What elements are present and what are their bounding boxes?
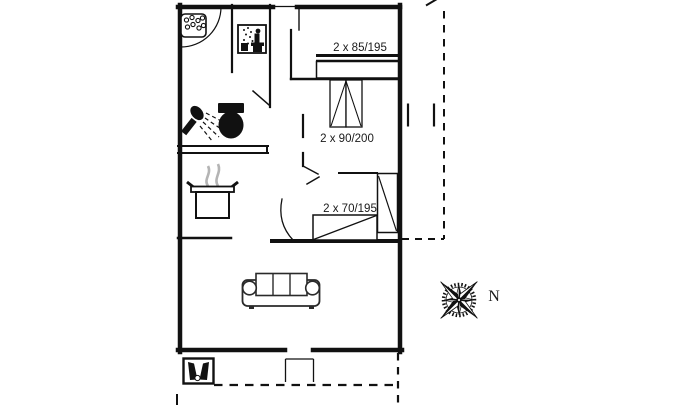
steam (206, 164, 219, 186)
double-bed (316, 56, 399, 79)
compass-rose-icon (422, 263, 496, 337)
twin-beds (330, 80, 362, 127)
sauna-icon (238, 25, 266, 53)
bunk-bed (313, 215, 377, 240)
floorplan-canvas: 2 x 85/195 2 x 90/200 2 x 70/195 (0, 0, 680, 408)
wood-stove-icon (184, 359, 214, 384)
double-bed-label: 2 x 85/195 (333, 42, 387, 54)
hallway-door-leaf-2 (307, 177, 319, 184)
hallway-door-leaf-1 (303, 166, 318, 174)
terrace-top-diagonal (426, 0, 437, 6)
toilet-icon (218, 103, 244, 139)
twin-beds-label: 2 x 90/200 (320, 133, 374, 145)
compass-north-label: N (488, 288, 500, 305)
floorplan-drawing: 2 x 85/195 2 x 90/200 2 x 70/195 (0, 0, 680, 408)
spa-bath-icon (181, 14, 206, 37)
wardrobe (378, 174, 398, 233)
entry-step (286, 359, 314, 382)
cooking-pot-icon (187, 164, 238, 218)
bunk-bed-label: 2 x 70/195 (323, 203, 377, 215)
livingroom-door-arc (281, 199, 293, 240)
bathroom-door-leaf (253, 91, 269, 105)
sofa-icon (243, 274, 320, 310)
